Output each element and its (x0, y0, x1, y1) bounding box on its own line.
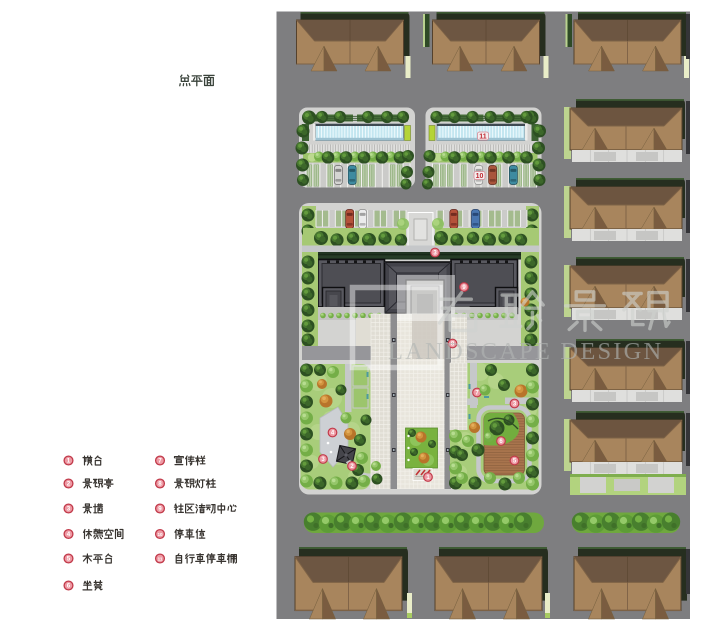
svg-text:8: 8 (158, 481, 162, 488)
svg-text:11: 11 (158, 557, 163, 562)
svg-text:4: 4 (67, 531, 71, 538)
svg-text:11: 11 (479, 134, 487, 141)
svg-text:1: 1 (67, 458, 71, 465)
svg-text:9: 9 (158, 506, 162, 513)
svg-text:10: 10 (476, 173, 484, 180)
svg-text:5: 5 (67, 556, 71, 563)
svg-text:3: 3 (67, 506, 71, 513)
svg-text:LANDSCAPE DESIGN: LANDSCAPE DESIGN (388, 338, 663, 365)
svg-text:6: 6 (67, 583, 71, 590)
svg-text:10: 10 (157, 532, 163, 537)
svg-text:7: 7 (158, 458, 162, 465)
svg-text:2: 2 (67, 481, 71, 488)
